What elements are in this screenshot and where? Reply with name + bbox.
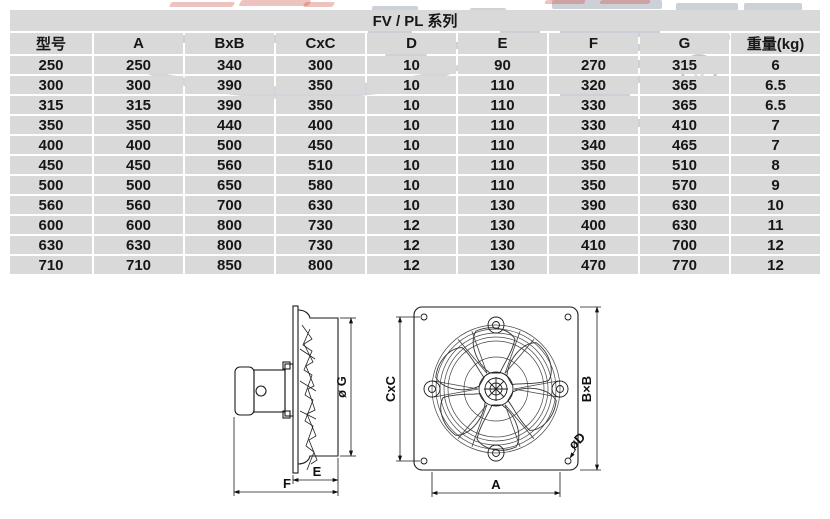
table-cell: 300	[276, 56, 365, 74]
table-cell: 350	[10, 116, 92, 134]
table-cell: 10	[367, 136, 456, 154]
column-header: 重量(kg)	[731, 33, 820, 54]
table-row: 5605607006301013039063010	[10, 196, 820, 214]
dim-label-g: ø G	[334, 376, 349, 398]
table-cell: 10	[367, 56, 456, 74]
table-cell: 710	[94, 256, 183, 274]
table-cell: 365	[640, 76, 729, 94]
table-cell: 630	[640, 196, 729, 214]
table-cell: 510	[276, 156, 365, 174]
table-row: 6006008007301213040063011	[10, 216, 820, 234]
table-cell: 90	[458, 56, 547, 74]
bell-mouth	[298, 310, 338, 464]
impeller-side	[300, 325, 317, 470]
table-cell: 390	[549, 196, 638, 214]
table-cell: 10	[367, 116, 456, 134]
table-cell: 400	[276, 116, 365, 134]
table-cell: 450	[94, 156, 183, 174]
table-row: 25025034030010902703156	[10, 56, 820, 74]
table-cell: 630	[640, 216, 729, 234]
table-cell: 450	[10, 156, 92, 174]
table-cell: 390	[185, 76, 274, 94]
table-row: 450450560510101103505108	[10, 156, 820, 174]
table-cell: 600	[10, 216, 92, 234]
table-header-row: 型号ABxBCxCDEFG重量(kg)	[10, 33, 820, 54]
table-title-row: FV / PL 系列	[10, 10, 820, 31]
table-cell: 12	[367, 256, 456, 274]
front-view-drawing: CxC B×B A øD	[383, 307, 601, 497]
table-cell: 250	[10, 56, 92, 74]
table-cell: 130	[458, 196, 547, 214]
table-cell: 10	[367, 196, 456, 214]
table-cell: 400	[549, 216, 638, 234]
column-header: E	[458, 33, 547, 54]
table-cell: 350	[276, 96, 365, 114]
table-cell: 700	[640, 236, 729, 254]
table-row: 7107108508001213047077012	[10, 256, 820, 274]
table-cell: 6.5	[731, 76, 820, 94]
table-cell: 7	[731, 136, 820, 154]
fan-technical-drawing: ø G E F	[150, 285, 680, 519]
table-cell: 10	[731, 196, 820, 214]
table-cell: 560	[94, 196, 183, 214]
hub	[479, 372, 513, 406]
table-cell: 800	[276, 256, 365, 274]
table-cell: 400	[94, 136, 183, 154]
table-cell: 12	[731, 236, 820, 254]
watermark-red-stroke	[303, 2, 336, 7]
table-cell: 730	[276, 216, 365, 234]
dim-label-bxb: B×B	[579, 376, 594, 402]
table-row: 400400500450101103404657	[10, 136, 820, 154]
table-cell: 710	[10, 256, 92, 274]
table-cell: 10	[367, 156, 456, 174]
table-cell: 450	[276, 136, 365, 154]
table-cell: 500	[10, 176, 92, 194]
series-title: FV / PL 系列	[10, 10, 820, 31]
table-cell: 580	[276, 176, 365, 194]
table-cell: 500	[94, 176, 183, 194]
table-cell: 315	[94, 96, 183, 114]
table-cell: 12	[731, 256, 820, 274]
dim-label-e: E	[313, 464, 322, 479]
table-cell: 110	[458, 116, 547, 134]
table-cell: 340	[549, 136, 638, 154]
table-cell: 300	[94, 76, 183, 94]
table-cell: 130	[458, 216, 547, 234]
table-cell: 9	[731, 176, 820, 194]
catalog-page: { "title": "FV / PL 系列", "table": { "col…	[0, 0, 830, 519]
table-row: 500500650580101103505709	[10, 176, 820, 194]
motor-bracket	[285, 364, 293, 416]
side-view-drawing: ø G E F	[234, 306, 356, 496]
dim-label-f: F	[283, 476, 291, 491]
table-cell: 11	[731, 216, 820, 234]
motor-body	[254, 370, 285, 412]
table-cell: 350	[276, 76, 365, 94]
table-cell: 850	[185, 256, 274, 274]
dim-label-a: A	[491, 477, 501, 492]
table-cell: 130	[458, 236, 547, 254]
table-cell: 330	[549, 116, 638, 134]
dim-label-cxc: CxC	[383, 375, 398, 402]
table-cell: 340	[185, 56, 274, 74]
table-cell: 365	[640, 96, 729, 114]
table-cell: 7	[731, 116, 820, 134]
table-cell: 315	[640, 56, 729, 74]
table-cell: 600	[94, 216, 183, 234]
table-cell: 110	[458, 76, 547, 94]
table-row: 6306308007301213041070012	[10, 236, 820, 254]
table-cell: 110	[458, 176, 547, 194]
column-header: CxC	[276, 33, 365, 54]
table-cell: 465	[640, 136, 729, 154]
table-cell: 10	[367, 176, 456, 194]
table-cell: 400	[10, 136, 92, 154]
table-cell: 10	[367, 76, 456, 94]
dim-cxc	[396, 317, 420, 461]
table-cell: 410	[640, 116, 729, 134]
table-cell: 560	[185, 156, 274, 174]
column-header: D	[367, 33, 456, 54]
table-cell: 800	[185, 236, 274, 254]
series-table: FV / PL 系列 型号ABxBCxCDEFG重量(kg) 250250340…	[8, 8, 822, 276]
table-cell: 315	[10, 96, 92, 114]
table-row: 315315390350101103303656.5	[10, 96, 820, 114]
column-header: G	[640, 33, 729, 54]
mounting-plate-side	[293, 306, 298, 473]
motor-terminal-hole	[256, 386, 266, 396]
watermark-red-stroke	[238, 0, 311, 6]
table-cell: 570	[640, 176, 729, 194]
table-cell: 6.5	[731, 96, 820, 114]
table-cell: 700	[185, 196, 274, 214]
table-cell: 630	[94, 236, 183, 254]
table-cell: 10	[367, 96, 456, 114]
column-header: BxB	[185, 33, 274, 54]
table-cell: 470	[549, 256, 638, 274]
table-cell: 770	[640, 256, 729, 274]
table-cell: 110	[458, 96, 547, 114]
dim-label-d: øD	[565, 429, 588, 452]
table-cell: 630	[276, 196, 365, 214]
column-header: 型号	[10, 33, 92, 54]
table-row: 300300390350101103203656.5	[10, 76, 820, 94]
table-cell: 130	[458, 256, 547, 274]
table-cell: 8	[731, 156, 820, 174]
table-cell: 350	[94, 116, 183, 134]
table-cell: 410	[549, 236, 638, 254]
table-cell: 110	[458, 156, 547, 174]
table-cell: 390	[185, 96, 274, 114]
table-cell: 320	[549, 76, 638, 94]
table-cell: 300	[10, 76, 92, 94]
motor-end-cap	[235, 367, 254, 415]
table-cell: 350	[549, 176, 638, 194]
table-cell: 630	[10, 236, 92, 254]
table-cell: 350	[549, 156, 638, 174]
table-cell: 270	[549, 56, 638, 74]
watermark-red-stroke	[169, 2, 236, 7]
table-row: 350350440400101103304107	[10, 116, 820, 134]
watermark-red-stroke	[599, 0, 651, 4]
table-cell: 650	[185, 176, 274, 194]
table-cell: 730	[276, 236, 365, 254]
table-cell: 6	[731, 56, 820, 74]
table-cell: 510	[640, 156, 729, 174]
table-cell: 560	[10, 196, 92, 214]
table-cell: 330	[549, 96, 638, 114]
table-cell: 12	[367, 236, 456, 254]
table-cell: 250	[94, 56, 183, 74]
column-header: A	[94, 33, 183, 54]
table-cell: 12	[367, 216, 456, 234]
table-cell: 800	[185, 216, 274, 234]
column-header: F	[549, 33, 638, 54]
watermark-red-stroke	[544, 0, 586, 4]
table-cell: 440	[185, 116, 274, 134]
table-cell: 500	[185, 136, 274, 154]
table-cell: 110	[458, 136, 547, 154]
